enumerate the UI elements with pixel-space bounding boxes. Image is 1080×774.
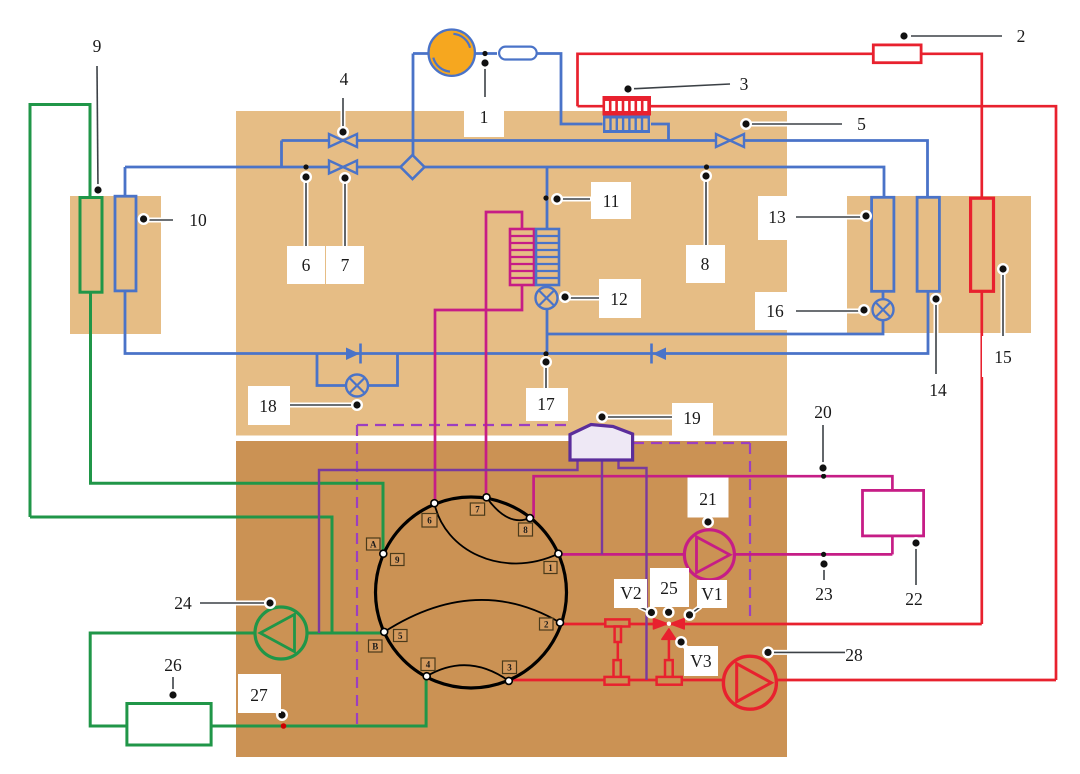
svg-text:B: B	[372, 641, 378, 651]
svg-text:27: 27	[250, 685, 268, 705]
svg-text:7: 7	[341, 255, 350, 275]
svg-text:1: 1	[548, 563, 553, 573]
svg-text:19: 19	[683, 408, 701, 428]
svg-text:21: 21	[699, 489, 717, 509]
svg-text:13: 13	[768, 207, 786, 227]
svg-text:3: 3	[740, 74, 749, 94]
svg-text:2: 2	[544, 619, 549, 629]
svg-text:28: 28	[845, 645, 863, 665]
svg-text:5: 5	[398, 631, 403, 641]
svg-text:14: 14	[929, 380, 947, 400]
svg-text:4: 4	[340, 69, 349, 89]
svg-text:9: 9	[93, 36, 102, 56]
svg-text:24: 24	[174, 593, 192, 613]
svg-text:10: 10	[189, 210, 207, 230]
svg-text:9: 9	[395, 555, 400, 565]
svg-text:16: 16	[766, 301, 784, 321]
svg-text:23: 23	[815, 584, 833, 604]
svg-text:5: 5	[857, 114, 866, 134]
svg-text:V2: V2	[620, 583, 641, 603]
svg-text:17: 17	[537, 394, 555, 414]
svg-text:18: 18	[259, 396, 277, 416]
svg-text:V1: V1	[701, 584, 722, 604]
svg-text:6: 6	[302, 255, 311, 275]
svg-text:2: 2	[1017, 26, 1026, 46]
svg-text:A: A	[370, 539, 377, 549]
svg-text:4: 4	[426, 660, 431, 670]
svg-text:7: 7	[475, 504, 480, 514]
svg-text:22: 22	[905, 589, 923, 609]
svg-text:3: 3	[507, 663, 512, 673]
svg-text:V3: V3	[690, 651, 712, 671]
svg-text:20: 20	[814, 402, 832, 422]
svg-text:1: 1	[480, 107, 489, 127]
svg-text:25: 25	[660, 578, 678, 598]
svg-text:26: 26	[164, 655, 182, 675]
svg-text:11: 11	[603, 191, 620, 211]
svg-text:15: 15	[994, 347, 1012, 367]
svg-text:6: 6	[427, 516, 432, 526]
svg-text:12: 12	[610, 289, 628, 309]
svg-text:8: 8	[523, 525, 528, 535]
svg-text:8: 8	[701, 254, 710, 274]
